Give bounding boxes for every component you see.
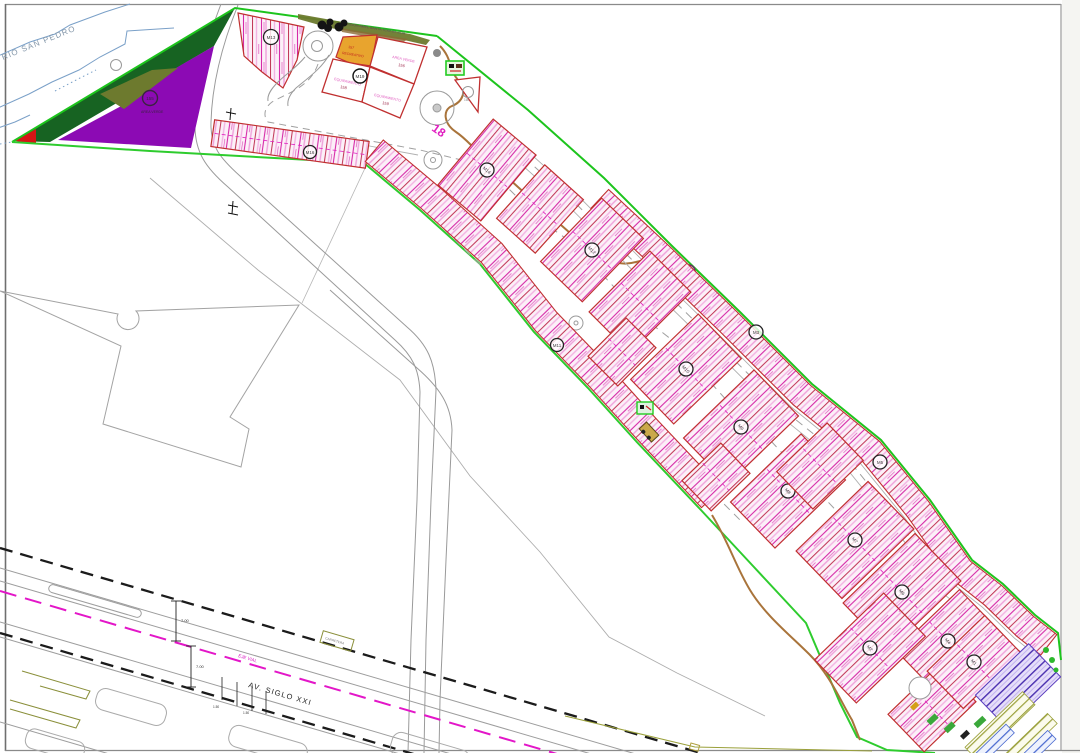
svg-text:7.00: 7.00	[181, 618, 190, 623]
svg-text:M19: M19	[356, 74, 365, 79]
svg-text:1.50: 1.50	[213, 705, 219, 709]
svg-text:1.50: 1.50	[243, 711, 249, 715]
svg-text:AREA VERDE: AREA VERDE	[141, 110, 164, 114]
svg-text:M16: M16	[306, 150, 315, 155]
svg-text:M5: M5	[877, 460, 884, 465]
svg-text:160: 160	[464, 98, 470, 102]
svg-text:155: 155	[146, 96, 154, 101]
svg-text:M11: M11	[553, 343, 562, 348]
svg-text:M13: M13	[267, 35, 276, 40]
svg-text:7.00: 7.00	[196, 664, 205, 669]
svg-text:M3: M3	[753, 330, 760, 335]
